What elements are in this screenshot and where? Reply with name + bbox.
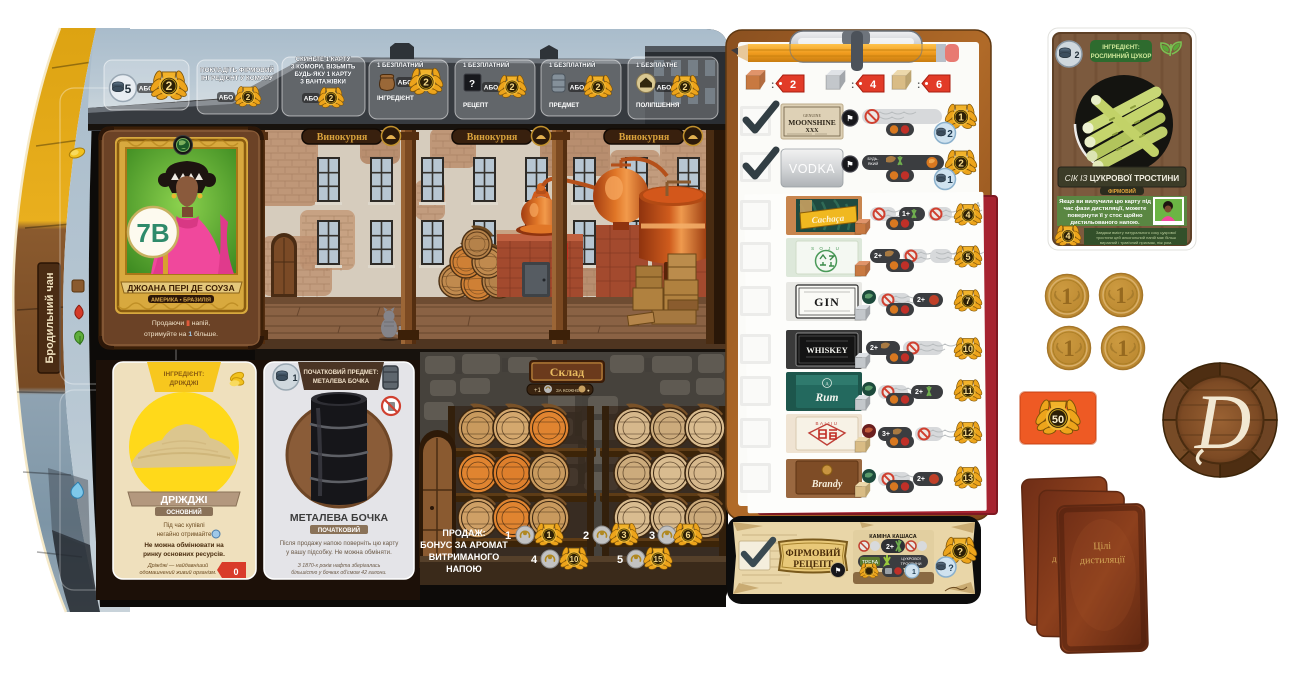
svg-text:4: 4 bbox=[965, 210, 970, 220]
svg-text:Бродильний чан: Бродильний чан bbox=[44, 272, 56, 363]
svg-text:2+: 2+ bbox=[915, 389, 923, 396]
svg-text:2+: 2+ bbox=[870, 345, 878, 352]
svg-text:Винокурня: Винокурня bbox=[467, 132, 518, 143]
svg-text:ПРЕДМЕТ: ПРЕДМЕТ bbox=[549, 102, 579, 109]
svg-text:Brandy: Brandy bbox=[811, 479, 843, 490]
svg-text:З ВАНТАЖІВКИ: З ВАНТАЖІВКИ bbox=[300, 79, 346, 86]
svg-text:БОНУС ЗА АРОМАТ: БОНУС ЗА АРОМАТ bbox=[420, 540, 508, 550]
svg-text:5: 5 bbox=[125, 82, 132, 96]
svg-text:БУДЬ-: БУДЬ- bbox=[868, 157, 880, 161]
svg-text:2: 2 bbox=[423, 78, 429, 89]
svg-text:СКИНЬТЕ 1 КАРТУ: СКИНЬТЕ 1 КАРТУ bbox=[296, 56, 351, 63]
svg-text:MOONSHINE: MOONSHINE bbox=[788, 118, 836, 127]
svg-text:2+: 2+ bbox=[917, 476, 925, 483]
svg-text:1: 1 bbox=[1063, 336, 1075, 361]
svg-text:у вашу підсобку. Не можна обмі: у вашу підсобку. Не можна обміняти. bbox=[286, 549, 392, 556]
svg-text:●: ● bbox=[587, 388, 590, 393]
svg-text:ринку основних ресурсів.: ринку основних ресурсів. bbox=[143, 550, 225, 558]
svg-text:повернути її у стос щойно: повернути її у стос щойно bbox=[1067, 212, 1143, 219]
svg-text:ПРОДАЖ:: ПРОДАЖ: bbox=[442, 528, 485, 538]
svg-text:⚑: ⚑ bbox=[846, 114, 853, 123]
svg-text:4: 4 bbox=[870, 79, 877, 91]
svg-text::: : bbox=[917, 80, 920, 91]
svg-text:МЕТАЛЕВА БОЧКА: МЕТАЛЕВА БОЧКА bbox=[313, 379, 370, 385]
svg-text:7B: 7B bbox=[136, 218, 169, 248]
svg-text:З КОМОРИ, ВІЗЬМІТЬ: З КОМОРИ, ВІЗЬМІТЬ bbox=[291, 64, 356, 71]
svg-text:+1: +1 bbox=[534, 388, 542, 394]
svg-text:?: ? bbox=[948, 563, 954, 573]
svg-text:1 БЕЗПЛАТНЕ: 1 БЕЗПЛАТНЕ bbox=[636, 63, 678, 69]
svg-text:ДЖОАНА ПЕРІ ДЕ СОУЗА: ДЖОАНА ПЕРІ ДЕ СОУЗА bbox=[127, 283, 234, 293]
svg-text:НАПОЮ: НАПОЮ bbox=[446, 564, 482, 574]
svg-text:Після продажу напою поверніть: Після продажу напою поверніть цю карту bbox=[280, 540, 400, 547]
svg-text:2: 2 bbox=[682, 82, 687, 92]
svg-text:4: 4 bbox=[531, 554, 538, 566]
svg-text:Продаючи ▮ напій,: Продаючи ▮ напій, bbox=[152, 319, 210, 327]
svg-text:Винокурня: Винокурня bbox=[317, 132, 368, 143]
svg-text:дистильованого напою.: дистильованого напою. bbox=[1070, 220, 1140, 226]
svg-text:4: 4 bbox=[1065, 231, 1070, 241]
svg-text:XXX: XXX bbox=[806, 128, 820, 134]
svg-text:ІНГРЕДІЄНТ: ІНГРЕДІЄНТ bbox=[377, 95, 414, 102]
svg-text:5: 5 bbox=[965, 252, 970, 262]
svg-text:ВИТРИМАНОГО: ВИТРИМАНОГО bbox=[429, 552, 499, 562]
svg-text:Дріжджі — найдавніший: Дріжджі — найдавніший bbox=[147, 562, 208, 569]
svg-text:1 БЕЗПЛАТНИЙ: 1 БЕЗПЛАТНИЙ bbox=[377, 61, 423, 69]
svg-text:ДРІЖДЖІ: ДРІЖДЖІ bbox=[161, 494, 208, 506]
svg-text:5: 5 bbox=[617, 554, 623, 566]
svg-text:РЕЦЕПТ: РЕЦЕПТ bbox=[793, 560, 833, 570]
svg-text:2: 2 bbox=[166, 79, 173, 93]
svg-text:ЦУКРОВОЇ: ЦУКРОВОЇ bbox=[901, 557, 921, 561]
svg-text:⚑: ⚑ bbox=[846, 160, 853, 169]
svg-text:АБО: АБО bbox=[484, 85, 498, 92]
svg-text:БУДЬ-ЯКУ 1 КАРТУ: БУДЬ-ЯКУ 1 КАРТУ bbox=[295, 71, 352, 78]
svg-text:10: 10 bbox=[570, 555, 579, 564]
svg-text:1: 1 bbox=[912, 569, 916, 576]
svg-text:1 БЕЗПЛАТНИЙ: 1 БЕЗПЛАТНИЙ bbox=[549, 61, 595, 69]
svg-text:д: д bbox=[1052, 554, 1057, 564]
svg-text:1+: 1+ bbox=[902, 211, 910, 218]
svg-text:10: 10 bbox=[963, 344, 973, 354]
svg-text:АБО: АБО bbox=[570, 85, 584, 92]
svg-text::: : bbox=[851, 80, 854, 91]
svg-text:2+: 2+ bbox=[874, 253, 882, 260]
svg-text:РОСЛИННИЙ ЦУКОР: РОСЛИННИЙ ЦУКОР bbox=[1091, 52, 1152, 60]
svg-text::: : bbox=[771, 80, 774, 91]
svg-text:ЯКИЙ: ЯКИЙ bbox=[868, 162, 879, 166]
svg-text:WHISKEY: WHISKEY bbox=[806, 345, 848, 355]
svg-text:ФІРМОВИЙ: ФІРМОВИЙ bbox=[1108, 187, 1136, 195]
svg-text:⚑: ⚑ bbox=[835, 566, 842, 575]
svg-text:2+: 2+ bbox=[886, 544, 894, 551]
svg-text:VODKA: VODKA bbox=[789, 162, 835, 176]
svg-text:ОСНОВНИЙ: ОСНОВНИЙ bbox=[166, 508, 201, 516]
svg-text:1: 1 bbox=[546, 530, 551, 540]
svg-text:Склад: Склад bbox=[550, 365, 584, 379]
svg-text:Під час купівлі: Під час купівлі bbox=[163, 522, 204, 529]
svg-text:негайно отримайте: негайно отримайте bbox=[157, 531, 212, 538]
svg-text:13: 13 bbox=[963, 473, 973, 483]
svg-text:ФІРМОВИЙ: ФІРМОВИЙ bbox=[786, 547, 842, 559]
svg-text:АБО: АБО bbox=[219, 95, 233, 102]
svg-text:АМЕРИКА • БРАЗИЛІЯ: АМЕРИКА • БРАЗИЛІЯ bbox=[151, 298, 211, 304]
svg-text:Винокурня: Винокурня bbox=[619, 132, 670, 143]
svg-text:1: 1 bbox=[1115, 283, 1127, 308]
svg-text:1: 1 bbox=[505, 530, 511, 542]
svg-text:РЕЦЕПТ: РЕЦЕПТ bbox=[463, 102, 488, 109]
svg-text:1: 1 bbox=[1061, 284, 1073, 309]
svg-text:2: 2 bbox=[246, 93, 251, 102]
svg-text:3: 3 bbox=[621, 530, 626, 540]
svg-text:З 1870-х років нафта зберігала: З 1870-х років нафта зберігалась bbox=[298, 563, 381, 569]
svg-text:3: 3 bbox=[649, 530, 655, 542]
svg-text:1 БЕЗПЛАТНИЙ: 1 БЕЗПЛАТНИЙ bbox=[463, 61, 509, 69]
svg-text:A: A bbox=[825, 383, 829, 388]
svg-text:одомашнений живий організм.: одомашнений живий організм. bbox=[140, 569, 217, 576]
svg-text:Цілі: Цілі bbox=[1093, 541, 1111, 552]
svg-text:50: 50 bbox=[1052, 414, 1064, 426]
svg-text:МЕТАЛЕВА БОЧКА: МЕТАЛЕВА БОЧКА bbox=[290, 512, 389, 524]
svg-text:ПОКЛАДІТЬ ФІРМОВИЙ: ПОКЛАДІТЬ ФІРМОВИЙ bbox=[200, 65, 274, 74]
svg-text:отримуйте на 1 більше.: отримуйте на 1 більше. bbox=[144, 330, 218, 338]
svg-text:виразний і трав'яний присмак,: виразний і трав'яний присмак, ніж ром. bbox=[1100, 240, 1172, 245]
svg-text:2: 2 bbox=[958, 159, 964, 170]
svg-text:СІК ІЗ ЦУКРОВОЇ ТРОСТИНИ: СІК ІЗ ЦУКРОВОЇ ТРОСТИНИ bbox=[1065, 173, 1180, 183]
svg-text:2: 2 bbox=[595, 82, 600, 92]
svg-text:2: 2 bbox=[583, 530, 589, 542]
svg-text:1: 1 bbox=[947, 175, 953, 186]
svg-text:час фази дистиляції, можете: час фази дистиляції, можете bbox=[1064, 205, 1148, 212]
svg-text:2: 2 bbox=[790, 79, 796, 91]
svg-text:2: 2 bbox=[947, 129, 953, 140]
svg-text:більшістю у бочках об'ємом 42: більшістю у бочках об'ємом 42 галони. bbox=[291, 570, 386, 576]
svg-text:ПОЧАТКОВИЙ: ПОЧАТКОВИЙ bbox=[318, 526, 360, 534]
svg-text:1: 1 bbox=[1117, 336, 1129, 361]
svg-text:ІНГРЕДІЄНТ У КОМОРУ: ІНГРЕДІЄНТ У КОМОРУ bbox=[201, 75, 273, 82]
svg-text:ПОЧАТКОВИЙ ПРЕДМЕТ:: ПОЧАТКОВИЙ ПРЕДМЕТ: bbox=[303, 368, 378, 376]
svg-text:6: 6 bbox=[936, 79, 942, 91]
svg-text:6: 6 bbox=[685, 530, 690, 540]
svg-text:15: 15 bbox=[654, 555, 663, 564]
svg-text:GIN: GIN bbox=[814, 295, 840, 309]
svg-text:12: 12 bbox=[963, 428, 973, 438]
svg-text:ІНГРЕДІЄНТ:: ІНГРЕДІЄНТ: bbox=[1102, 45, 1140, 51]
svg-text:ЗА КОЖНЕ: ЗА КОЖНЕ bbox=[556, 388, 579, 393]
svg-text:?: ? bbox=[957, 547, 963, 558]
svg-text:ДРІЖДЖІ: ДРІЖДЖІ bbox=[170, 380, 199, 387]
svg-text:2: 2 bbox=[1074, 50, 1079, 60]
svg-text:2+: 2+ bbox=[917, 297, 925, 304]
svg-text:0: 0 bbox=[233, 567, 238, 577]
svg-text:АБО: АБО bbox=[304, 96, 318, 103]
svg-text:11: 11 bbox=[963, 386, 973, 396]
svg-text:1: 1 bbox=[958, 113, 964, 124]
svg-text:Rum: Rum bbox=[814, 392, 838, 404]
svg-text:Якщо ви вилучили цю карту під: Якщо ви вилучили цю карту під bbox=[1059, 199, 1151, 205]
svg-text:Не можна обмінювати на: Не можна обмінювати на bbox=[144, 541, 224, 549]
svg-text:2: 2 bbox=[329, 94, 334, 103]
svg-text:?: ? bbox=[469, 79, 475, 90]
svg-text:1: 1 bbox=[292, 373, 297, 383]
svg-text:дистиляції: дистиляції bbox=[1080, 554, 1126, 566]
svg-text:ПОЛІПШЕННЯ: ПОЛІПШЕННЯ bbox=[636, 102, 680, 109]
svg-text:ІНГРЕДІЄНТ:: ІНГРЕДІЄНТ: bbox=[164, 371, 205, 378]
svg-text:2: 2 bbox=[509, 82, 514, 92]
svg-text:7: 7 bbox=[965, 296, 970, 306]
svg-text:АБО: АБО bbox=[657, 85, 671, 92]
